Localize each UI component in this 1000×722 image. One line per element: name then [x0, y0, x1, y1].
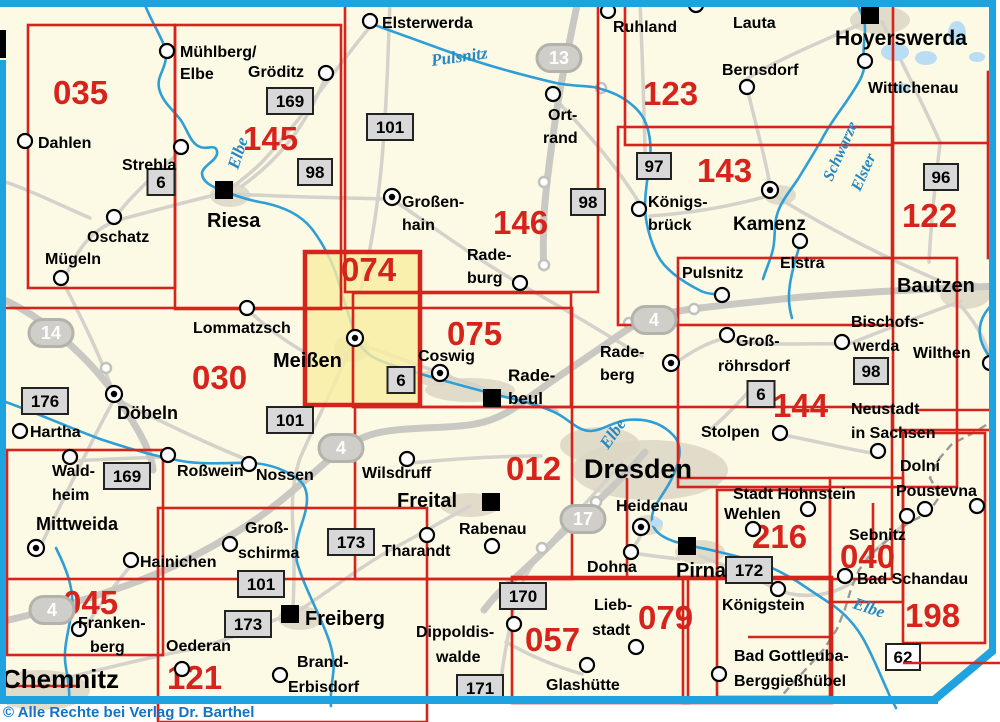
map-border-top	[0, 0, 1000, 7]
town-label: Bad Schandau	[857, 571, 968, 588]
city-symbol-square	[861, 6, 879, 24]
sheet-216-number: 216	[752, 518, 807, 555]
town-label: Rade-	[600, 344, 644, 361]
town-symbol-circle	[273, 668, 287, 682]
road-junction	[101, 363, 111, 373]
town-symbol-circle	[400, 452, 414, 466]
city-symbol-square	[215, 181, 233, 199]
town-label: Dolní	[900, 458, 941, 475]
town-symbol-dot	[668, 360, 674, 366]
town-label: hain	[402, 217, 435, 234]
map-border-bottom	[0, 696, 938, 704]
town-label: Freiberg	[305, 608, 385, 630]
town-symbol-circle	[54, 271, 68, 285]
road-junction	[539, 177, 549, 187]
town-symbol-circle	[242, 457, 256, 471]
town-label: Rade-	[467, 247, 511, 264]
sheet-079-number: 079	[638, 599, 693, 636]
town-label: Königs-	[648, 194, 708, 211]
town-label: Hoyerswerda	[835, 27, 967, 50]
town-label: Brand-	[297, 654, 349, 671]
town-label: Wald-	[52, 463, 95, 480]
town-symbol-dot	[111, 391, 117, 397]
road-shield-6: 6	[756, 385, 765, 404]
road-shield-173: 173	[337, 533, 365, 552]
town-label: Pirna	[676, 560, 727, 582]
town-label: Ort-	[548, 107, 577, 124]
town-label: Bautzen	[897, 275, 975, 297]
town-label: beul	[508, 389, 543, 408]
town-symbol-dot	[437, 370, 443, 376]
town-symbol-circle	[174, 140, 188, 154]
town-label: Stadt Hohnstein	[733, 486, 856, 503]
town-label: heim	[52, 487, 89, 504]
town-label: Freital	[397, 490, 457, 512]
town-label: Nossen	[256, 467, 314, 484]
town-label: Heidenau	[616, 498, 688, 515]
road-shield-96: 96	[932, 168, 951, 187]
road-shield-6: 6	[396, 371, 405, 390]
town-label: Mügeln	[45, 251, 101, 268]
town-label: Dahlen	[38, 135, 91, 152]
town-label: berg	[90, 639, 125, 656]
town-symbol-circle	[918, 502, 932, 516]
town-symbol-circle	[107, 210, 121, 224]
sheet-123-number: 123	[643, 75, 698, 112]
sheet-074-number: 074	[341, 251, 397, 288]
town-label: Wilthen	[913, 345, 971, 362]
road-shield-98: 98	[579, 193, 598, 212]
town-label: rand	[543, 130, 578, 147]
town-label: brück	[648, 217, 692, 234]
town-symbol-circle	[546, 87, 560, 101]
town-label: walde	[435, 649, 481, 666]
motorway-shield-4: 4	[336, 438, 346, 458]
town-label: Wehlen	[724, 506, 781, 523]
town-label: burg	[467, 270, 503, 287]
road-shield-101: 101	[247, 575, 275, 594]
road-junction	[537, 543, 547, 553]
town-symbol-circle	[124, 553, 138, 567]
sheet-075-number: 075	[447, 315, 502, 352]
town-label: Rade-	[508, 366, 555, 385]
sheet-030-number: 030	[192, 359, 247, 396]
town-label: Gröditz	[248, 64, 304, 81]
sheet-035-number: 035	[53, 74, 108, 111]
town-label: Dresden	[584, 454, 692, 484]
town-label: Ruhland	[613, 19, 677, 36]
road-shield-170: 170	[509, 587, 537, 606]
town-label: Oschatz	[87, 229, 149, 246]
town-symbol-circle	[624, 545, 638, 559]
map-edge-tick	[0, 30, 6, 58]
town-label: Elbe	[180, 66, 214, 83]
town-symbol-circle	[771, 582, 785, 596]
motorway-shield-4: 4	[649, 310, 659, 330]
map-border-left	[0, 60, 6, 703]
town-symbol-circle	[580, 658, 594, 672]
town-label: Dippoldis-	[416, 624, 494, 641]
town-symbol-circle	[712, 667, 726, 681]
town-label: Sebnitz	[849, 527, 906, 544]
town-label: Lauta	[733, 15, 776, 32]
town-symbol-circle	[161, 448, 175, 462]
town-symbol-circle	[223, 537, 237, 551]
town-label: Königstein	[722, 597, 805, 614]
town-symbol-dot	[389, 194, 395, 200]
road-shield-98: 98	[306, 163, 325, 182]
town-label: Rabenau	[459, 521, 527, 538]
town-label: Bernsdorf	[722, 62, 799, 79]
town-symbol-circle	[507, 617, 521, 631]
sheet-122-number: 122	[902, 197, 957, 234]
town-label: schirma	[238, 545, 299, 562]
town-symbol-circle	[793, 234, 807, 248]
town-label: Franken-	[78, 615, 146, 632]
town-label: Wittichenau	[868, 80, 959, 97]
road-shield-98: 98	[862, 362, 881, 381]
sheet-012-number: 012	[506, 450, 561, 487]
town-symbol-circle	[740, 80, 754, 94]
town-label: Großen-	[402, 194, 464, 211]
sheet-057-number: 057	[525, 621, 580, 658]
town-symbol-circle	[18, 134, 32, 148]
city-symbol-square	[483, 389, 501, 407]
town-label: Stolpen	[701, 424, 760, 441]
copyright-notice: © Alle Rechte bei Verlag Dr. Barthel	[3, 704, 254, 721]
road-shield-169: 169	[113, 467, 141, 486]
town-label: Oederan	[166, 638, 231, 655]
town-symbol-circle	[871, 444, 885, 458]
town-label: Wilsdruff	[362, 465, 432, 482]
town-label: Poustevna	[896, 483, 977, 500]
town-symbol-circle	[858, 54, 872, 68]
town-label: in Sachsen	[851, 425, 935, 442]
town-symbol-circle	[900, 509, 914, 523]
town-label: Hainichen	[140, 554, 216, 571]
town-symbol-circle	[363, 14, 377, 28]
lake	[969, 52, 985, 62]
map-edge-white	[996, 0, 1000, 703]
city-symbol-square	[482, 493, 500, 511]
town-label: Glashütte	[546, 677, 620, 694]
town-label: Bischofs-	[851, 314, 924, 331]
motorway-shield-13: 13	[549, 48, 569, 68]
road-shield-172: 172	[735, 561, 763, 580]
sheet-143-number: 143	[697, 152, 752, 189]
sheet-145-number: 145	[243, 120, 298, 157]
town-label: Berggießhübel	[734, 673, 846, 690]
town-symbol-circle	[485, 539, 499, 553]
motorway-shield-17: 17	[573, 509, 593, 529]
town-symbol-circle	[63, 450, 77, 464]
road-junction	[539, 260, 549, 270]
city-symbol-square	[281, 605, 299, 623]
road-shield-101: 101	[376, 118, 404, 137]
town-symbol-circle	[838, 569, 852, 583]
town-label: Lommatzsch	[193, 320, 291, 337]
map-sheet-index: 0351451461231431220300750741440120451210…	[0, 0, 1000, 722]
town-label: Bad Gottleuba-	[734, 648, 849, 665]
town-symbol-dot	[767, 187, 773, 193]
town-symbol-circle	[629, 640, 643, 654]
town-label: stadt	[592, 622, 631, 639]
lake	[651, 519, 663, 527]
sheet-198-number: 198	[905, 597, 960, 634]
town-label: Groß-	[736, 333, 780, 350]
town-symbol-circle	[835, 335, 849, 349]
town-label: Neustadt	[851, 401, 920, 418]
town-label: werda	[852, 338, 899, 355]
town-symbol-circle	[319, 66, 333, 80]
town-label: Chemnitz	[2, 664, 119, 694]
town-label: Groß-	[245, 520, 289, 537]
town-label: Dohna	[587, 559, 637, 576]
town-label: Mühlberg/	[180, 44, 257, 61]
lake	[915, 51, 937, 65]
road-shield-169: 169	[276, 92, 304, 111]
road-shield-171: 171	[466, 679, 494, 698]
town-symbol-circle	[175, 662, 189, 676]
town-label: Tharandt	[382, 543, 451, 560]
motorway-shield-14: 14	[41, 323, 61, 343]
road-junction	[689, 304, 699, 314]
road-shield-6: 6	[156, 173, 165, 192]
town-label: röhrsdorf	[718, 358, 791, 375]
town-symbol-circle	[801, 502, 815, 516]
town-label: Elstra	[780, 255, 825, 272]
town-symbol-circle	[746, 522, 760, 536]
town-label: Erbisdorf	[288, 679, 360, 696]
road-shield-97: 97	[645, 157, 664, 176]
map-border-right	[989, 0, 996, 651]
town-symbol-circle	[773, 426, 787, 440]
town-label: Pulsnitz	[682, 265, 743, 282]
town-symbol-circle	[715, 288, 729, 302]
town-symbol-circle	[970, 499, 984, 513]
town-symbol-circle	[240, 301, 254, 315]
town-label: Lieb-	[594, 597, 632, 614]
town-symbol-circle	[720, 328, 734, 342]
town-label: Kamenz	[733, 214, 806, 235]
road-shield-173: 173	[234, 615, 262, 634]
sheet-index-map-canvas: 0351451461231431220300750741440120451210…	[0, 0, 1000, 722]
city-symbol-square	[678, 537, 696, 555]
town-symbol-circle	[13, 424, 27, 438]
town-symbol-dot	[638, 524, 644, 530]
town-label: Elsterwerda	[382, 15, 473, 32]
town-label: Döbeln	[117, 403, 178, 423]
town-label: Hartha	[30, 424, 81, 441]
town-label: Coswig	[418, 348, 475, 365]
road-shield-101: 101	[276, 411, 304, 430]
town-label: Riesa	[207, 210, 261, 232]
town-symbol-circle	[632, 202, 646, 216]
town-label: Mittweida	[36, 514, 119, 534]
town-label: Strehla	[122, 157, 176, 174]
town-symbol-dot	[352, 335, 358, 341]
road-shield-176: 176	[31, 392, 59, 411]
sheet-146-number: 146	[493, 204, 548, 241]
town-symbol-dot	[33, 545, 39, 551]
town-symbol-circle	[420, 528, 434, 542]
town-label: Roßwein	[177, 463, 244, 480]
town-label: Meißen	[273, 350, 342, 372]
sheet-144-number: 144	[773, 387, 829, 424]
town-symbol-circle	[160, 44, 174, 58]
town-label: berg	[600, 367, 635, 384]
town-symbol-circle	[513, 276, 527, 290]
motorway-shield-4: 4	[47, 600, 57, 620]
